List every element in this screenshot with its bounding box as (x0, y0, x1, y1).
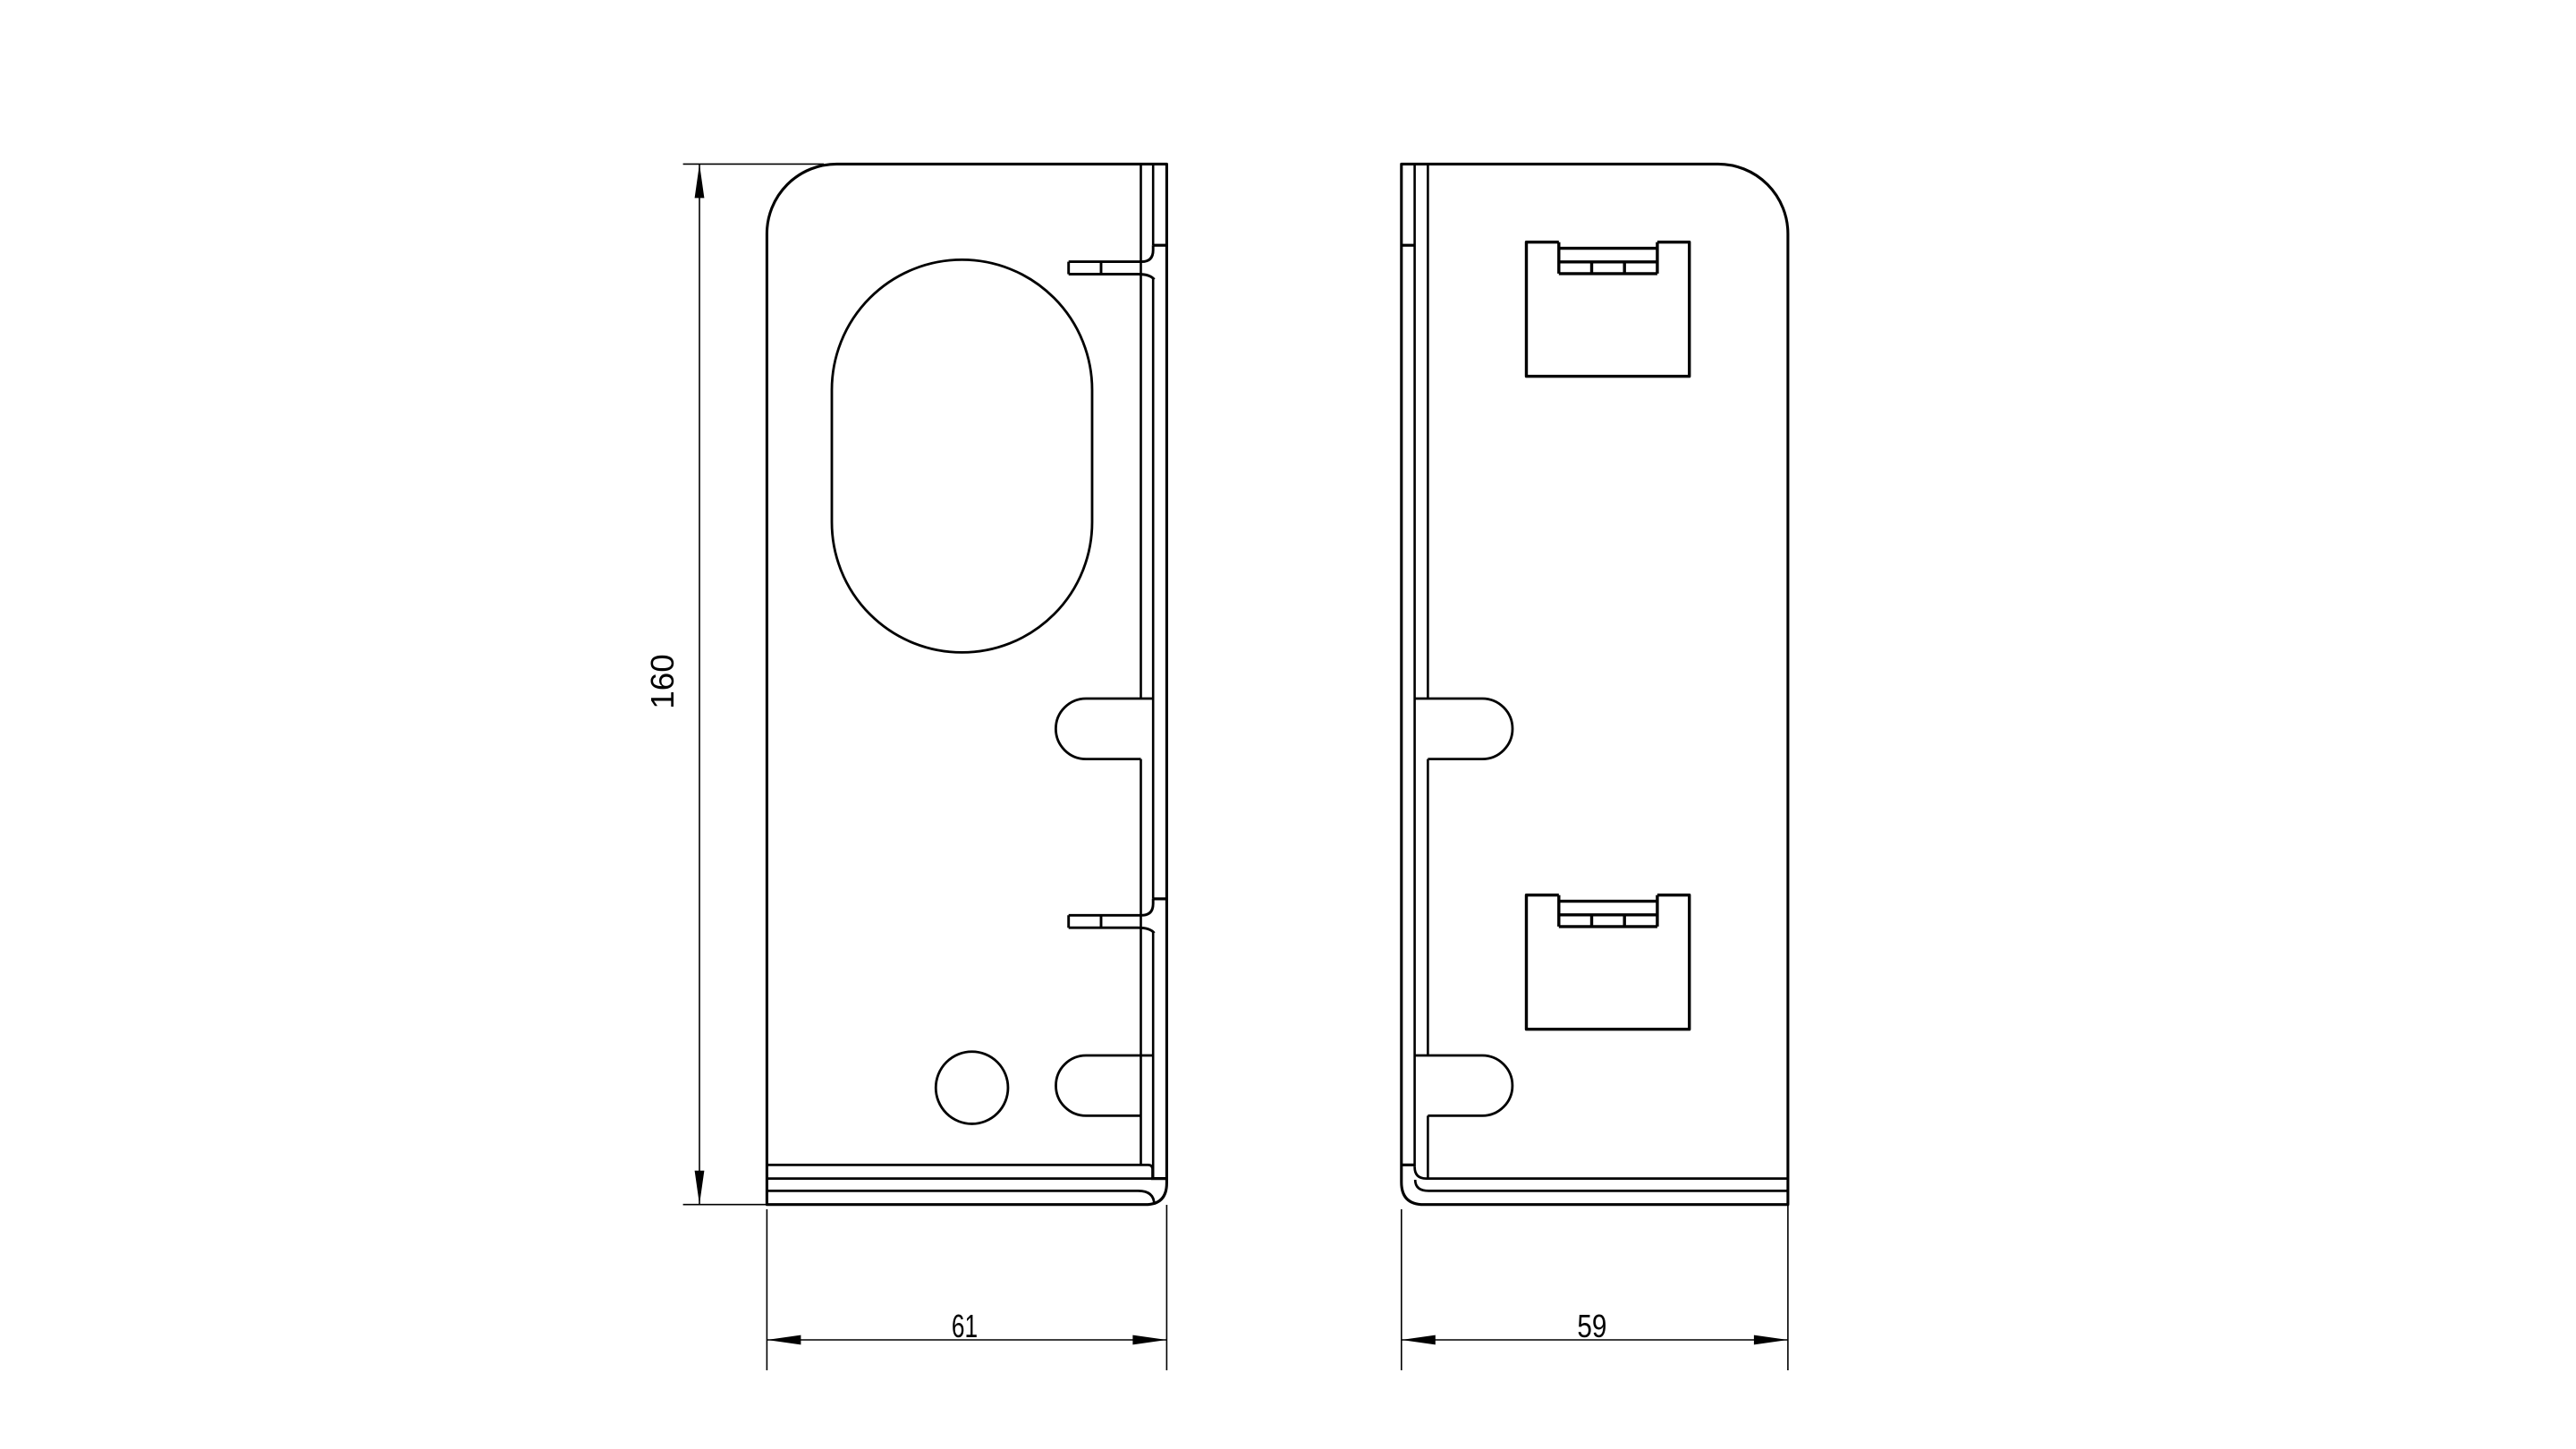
svg-text:160: 160 (644, 654, 681, 709)
svg-text:59: 59 (1577, 1308, 1606, 1344)
svg-text:61: 61 (952, 1308, 978, 1344)
